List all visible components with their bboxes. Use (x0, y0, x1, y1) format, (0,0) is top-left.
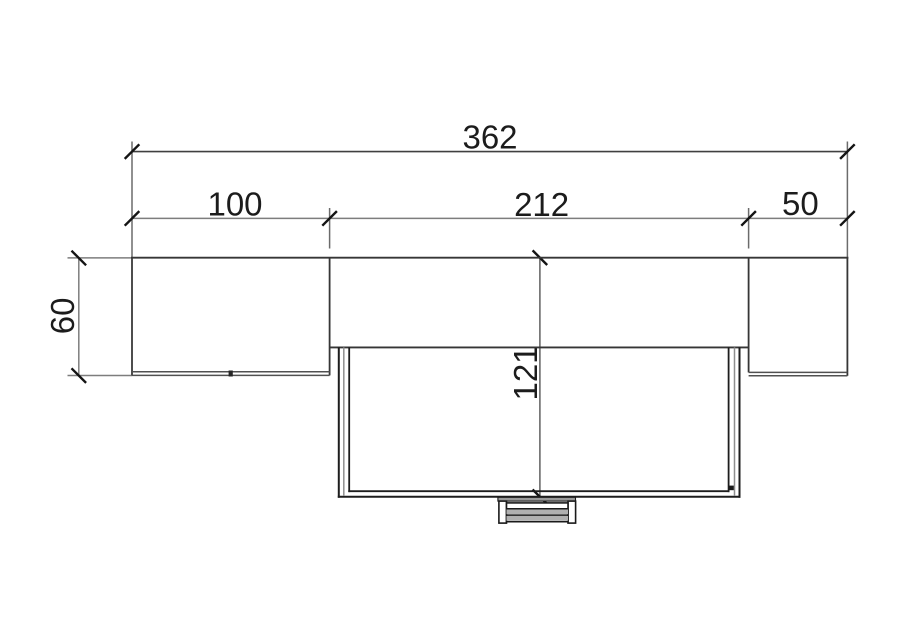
svg-text:100: 100 (207, 185, 262, 222)
svg-text:212: 212 (514, 186, 569, 223)
svg-text:50: 50 (782, 185, 819, 222)
svg-text:362: 362 (462, 118, 517, 155)
svg-text:60: 60 (44, 298, 81, 335)
svg-text:121: 121 (507, 345, 544, 400)
